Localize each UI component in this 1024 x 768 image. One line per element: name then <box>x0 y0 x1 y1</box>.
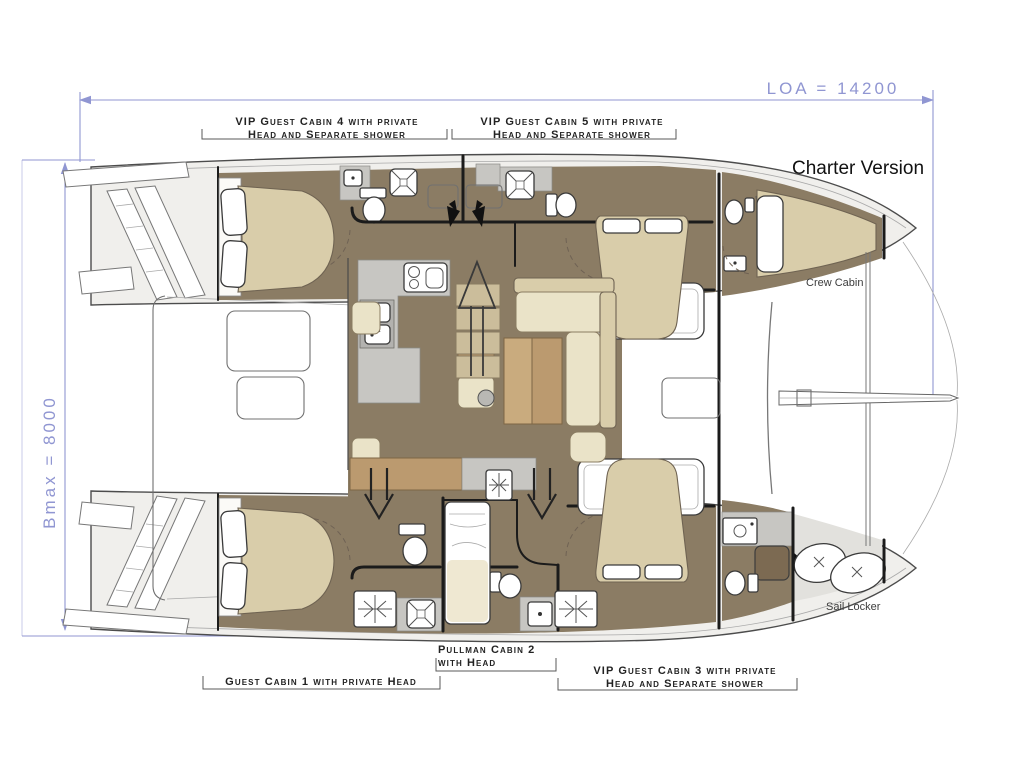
charter-version-label: Charter Version <box>792 158 924 179</box>
shower-icon <box>390 169 417 196</box>
label-guest-cabin-1: Guest Cabin 1 with private Head <box>225 676 417 688</box>
bmax-dimension-label: Bmax = 8000 <box>40 395 59 529</box>
floorplan-page: LOA = 14200 Bmax = 8000 Charter Version <box>0 0 1024 768</box>
deck-hatch-icon <box>555 591 597 627</box>
label-pullman-cabin-2-line2: with Head <box>438 657 496 669</box>
deck-hatch-icon <box>486 470 512 500</box>
pillow <box>645 565 682 579</box>
label-vip-cabin-4-line1: VIP Guest Cabin 4 with private <box>235 116 418 128</box>
aft-counter <box>350 458 462 490</box>
shower-icon <box>506 171 534 199</box>
pillow <box>603 219 640 233</box>
label-vip-cabin-3-line1: VIP Guest Cabin 3 with private <box>593 665 776 677</box>
pillow <box>220 510 247 558</box>
salon-table <box>504 338 532 424</box>
pillow <box>645 219 682 233</box>
pullman-bed <box>445 502 490 624</box>
label-sail-locker: Sail Locker <box>826 601 881 613</box>
toilet-icon <box>725 571 758 595</box>
catamaran-floorplan-drawing: LOA = 14200 Bmax = 8000 Charter Version <box>0 0 1024 768</box>
cockpit-table <box>227 311 310 371</box>
forward-beam <box>768 302 773 494</box>
pillow <box>220 188 247 236</box>
label-pullman-cabin-2-line1: Pullman Cabin 2 <box>438 644 535 656</box>
deck-hatch-icon <box>354 591 396 627</box>
label-vip-cabin-5-line1: VIP Guest Cabin 5 with private <box>480 116 663 128</box>
label-vip-cabin-3-line2: Head and Separate shower <box>606 678 764 690</box>
sofa-back <box>514 278 614 293</box>
sofa-seat <box>516 292 612 332</box>
pillow <box>220 562 247 610</box>
sink-icon <box>723 518 757 544</box>
stove-icon <box>404 263 447 292</box>
toilet-icon <box>546 193 576 217</box>
cockpit-bench <box>237 377 304 419</box>
shower-icon <box>755 546 789 580</box>
toilet-icon <box>725 200 743 224</box>
pillow <box>603 565 640 579</box>
pillow <box>220 240 247 288</box>
loa-dimension-label: LOA = 14200 <box>767 79 900 98</box>
stool <box>478 390 494 406</box>
pouf <box>570 432 606 462</box>
label-crew-cabin: Crew Cabin <box>806 277 863 289</box>
shower-icon <box>407 600 435 628</box>
